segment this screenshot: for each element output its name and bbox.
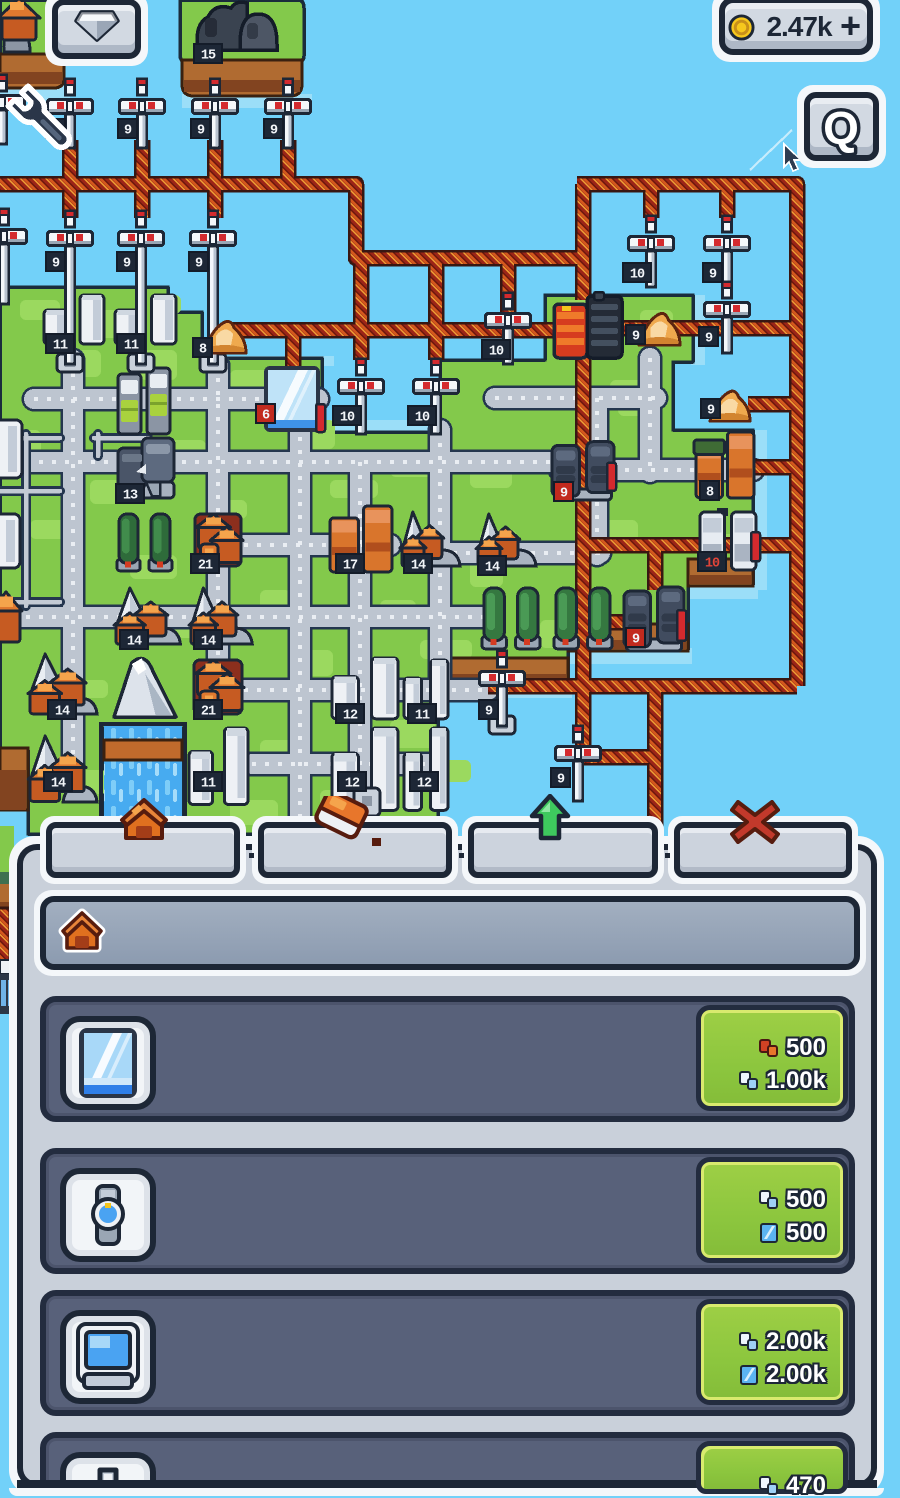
svg-text:17: 17 <box>343 559 358 574</box>
svg-text:9: 9 <box>270 124 278 139</box>
svg-text:6: 6 <box>262 409 270 424</box>
svg-text:8: 8 <box>199 343 207 358</box>
svg-text:21: 21 <box>201 705 216 720</box>
svg-text:10: 10 <box>340 411 355 426</box>
svg-text:11: 11 <box>53 339 68 354</box>
svg-text:14: 14 <box>51 777 66 792</box>
svg-text:9: 9 <box>709 268 717 283</box>
svg-text:9: 9 <box>705 332 713 347</box>
svg-text:12: 12 <box>343 709 358 724</box>
svg-text:14: 14 <box>485 561 500 576</box>
svg-text:9: 9 <box>123 257 131 272</box>
svg-text:10: 10 <box>630 268 645 283</box>
svg-text:10: 10 <box>415 411 430 426</box>
svg-text:9: 9 <box>124 124 132 139</box>
svg-text:8: 8 <box>706 486 714 501</box>
svg-text:13: 13 <box>123 489 138 504</box>
svg-text:11: 11 <box>201 777 216 792</box>
svg-text:14: 14 <box>411 559 426 574</box>
svg-text:14: 14 <box>127 635 142 650</box>
svg-text:14: 14 <box>55 705 70 720</box>
svg-text:9: 9 <box>197 124 205 139</box>
svg-text:15: 15 <box>201 49 216 64</box>
svg-text:11: 11 <box>124 339 139 354</box>
svg-text:9: 9 <box>707 404 715 419</box>
svg-text:11: 11 <box>415 709 430 724</box>
svg-text:9: 9 <box>560 487 568 502</box>
svg-text:14: 14 <box>201 635 216 650</box>
svg-text:12: 12 <box>417 777 432 792</box>
svg-text:9: 9 <box>195 257 203 272</box>
svg-text:9: 9 <box>557 773 565 788</box>
svg-text:12: 12 <box>345 777 360 792</box>
svg-text:10: 10 <box>705 557 720 572</box>
svg-text:9: 9 <box>632 330 640 345</box>
svg-text:Q: Q <box>823 102 859 154</box>
svg-text:9: 9 <box>52 257 60 272</box>
svg-text:21: 21 <box>198 559 213 574</box>
svg-text:9: 9 <box>632 633 640 648</box>
svg-text:10: 10 <box>489 345 504 360</box>
svg-text:9: 9 <box>485 705 493 720</box>
